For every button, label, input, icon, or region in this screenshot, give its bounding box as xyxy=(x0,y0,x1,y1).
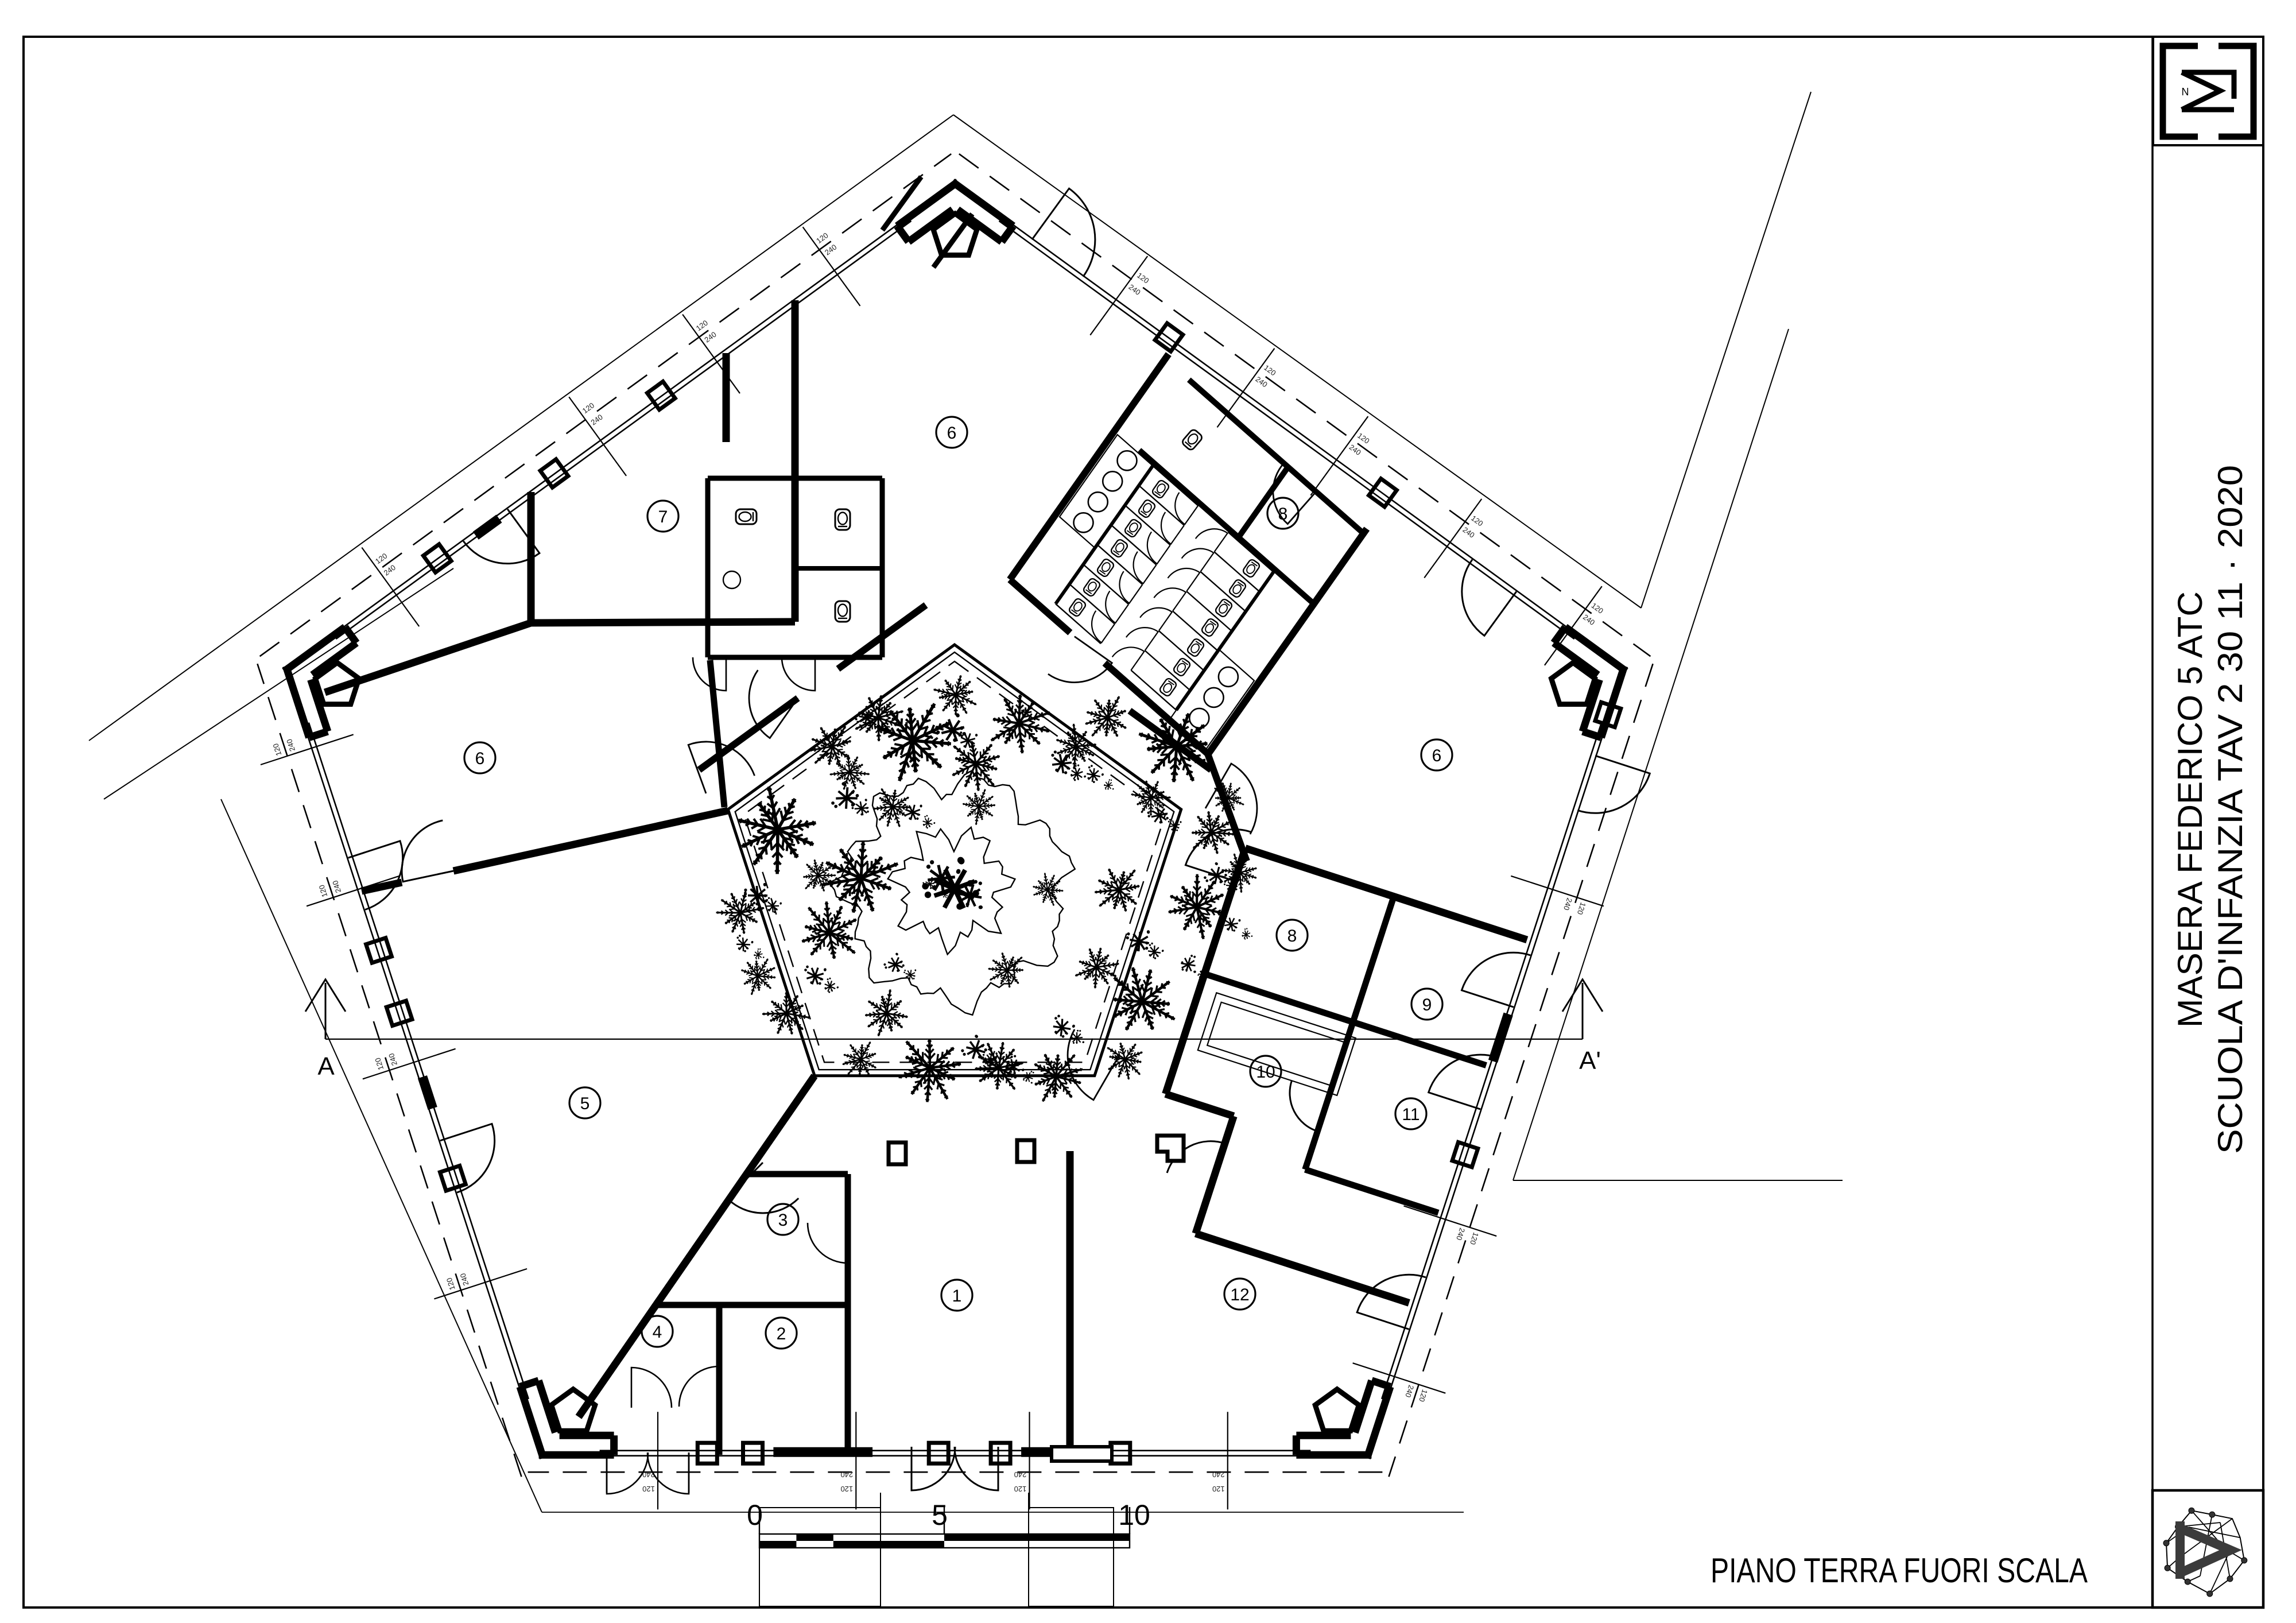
svg-text:SCUOLA D'INFANZIA TAV 2 30: SCUOLA D'INFANZIA TAV 2 30 11 · 2020 xyxy=(2211,465,2250,1154)
svg-text:7: 7 xyxy=(658,508,668,526)
svg-text:5: 5 xyxy=(580,1094,590,1113)
svg-text:12: 12 xyxy=(1230,1285,1249,1304)
svg-text:240: 240 xyxy=(840,1470,853,1479)
svg-text:2: 2 xyxy=(777,1324,786,1343)
svg-text:120: 120 xyxy=(1014,1485,1027,1493)
svg-text:10: 10 xyxy=(1256,1063,1275,1082)
svg-text:PIANO TERRA FUORI SCALA: PIANO TERRA FUORI SCALA xyxy=(1711,1551,2088,1590)
svg-text:5: 5 xyxy=(932,1499,948,1531)
svg-text:N: N xyxy=(2182,86,2189,98)
svg-text:120: 120 xyxy=(1212,1485,1225,1493)
svg-text:4: 4 xyxy=(653,1323,662,1342)
svg-text:MASERA FEDERICO 5 ATC: MASERA FEDERICO 5 ATC xyxy=(2171,591,2209,1028)
svg-text:9: 9 xyxy=(1422,996,1432,1014)
svg-text:8: 8 xyxy=(1287,927,1297,946)
svg-text:6: 6 xyxy=(1432,746,1442,765)
svg-text:3: 3 xyxy=(778,1211,788,1230)
svg-text:6: 6 xyxy=(947,424,957,443)
svg-text:6: 6 xyxy=(475,749,485,768)
svg-text:120: 120 xyxy=(642,1485,655,1493)
svg-text:240: 240 xyxy=(1014,1470,1027,1479)
svg-text:8: 8 xyxy=(1278,505,1288,524)
svg-text:A': A' xyxy=(1579,1047,1601,1075)
svg-text:120: 120 xyxy=(840,1485,853,1493)
svg-text:0: 0 xyxy=(747,1499,763,1531)
svg-text:10: 10 xyxy=(1118,1499,1150,1531)
svg-text:11: 11 xyxy=(1402,1105,1420,1124)
svg-text:240: 240 xyxy=(1212,1470,1225,1479)
svg-text:1: 1 xyxy=(952,1287,962,1306)
svg-text:A: A xyxy=(317,1052,335,1080)
